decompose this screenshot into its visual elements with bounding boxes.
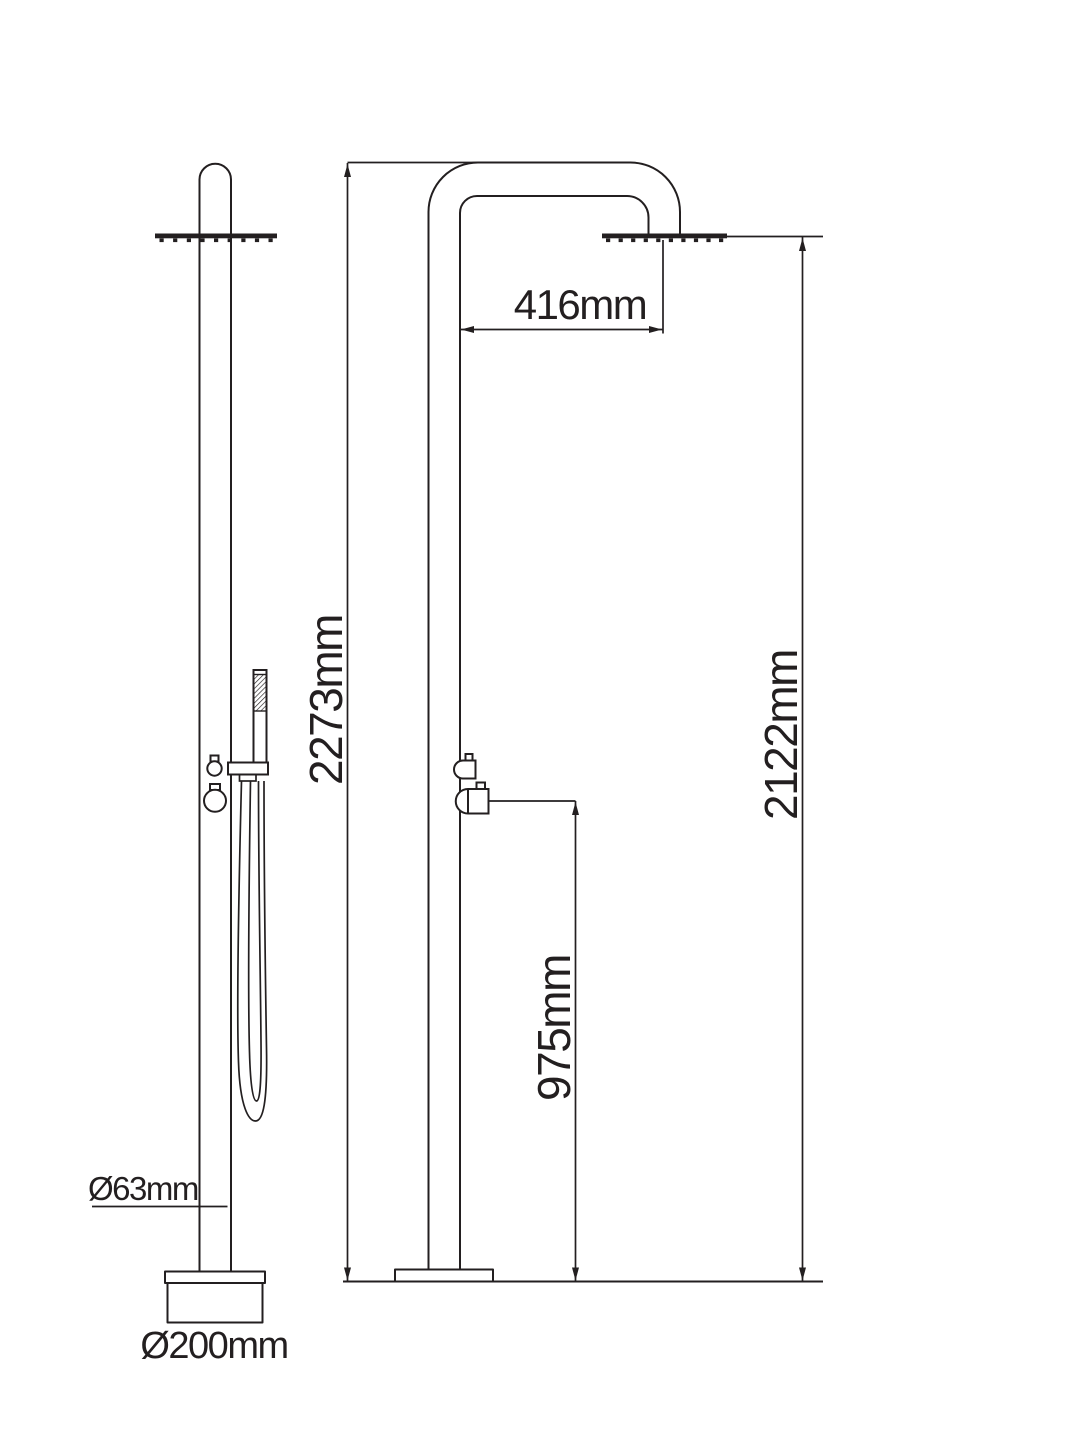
arrowhead-up <box>799 238 806 251</box>
dimension-base-diameter: Ø200mm <box>140 1325 287 1367</box>
front-base-plate <box>395 1270 493 1282</box>
side-column-outline <box>200 164 232 1272</box>
drawing-canvas: 2273mm 2122mm 975mm 416mm <box>0 0 1080 1439</box>
dimension-label-head-offset: 416mm <box>514 281 647 328</box>
front-showerhead-plate <box>602 234 727 239</box>
arrowhead-left <box>461 326 474 333</box>
shower-hose-outer <box>238 781 267 1121</box>
arrowhead-down <box>799 1268 806 1281</box>
dimension-label-head-height: 2122mm <box>755 650 807 820</box>
side-base-flange <box>165 1272 265 1284</box>
side-view <box>155 164 277 1323</box>
dimension-column-diameter: Ø63mm <box>88 1170 228 1207</box>
dimension-label-total-height: 2273mm <box>300 615 352 785</box>
dimension-head-offset: 416mm <box>460 240 663 334</box>
arrowhead-down <box>344 1268 351 1281</box>
hand-shower-holder <box>228 763 268 775</box>
arrowhead-up <box>572 802 579 815</box>
front-mixer-body <box>456 789 489 814</box>
diverter-knob <box>207 761 221 775</box>
arrowhead-down <box>572 1268 579 1281</box>
mixer-knob <box>204 790 226 812</box>
side-showerhead-plate <box>155 234 277 239</box>
hand-shower-spray-face <box>254 675 267 712</box>
front-showerhead-nozzles <box>606 239 723 243</box>
dimension-label-base-diameter: Ø200mm <box>140 1325 287 1367</box>
arrowhead-up <box>344 164 351 177</box>
dimension-head-height: 2122mm <box>727 237 823 1282</box>
dimension-total-height: 2273mm <box>300 163 480 1282</box>
side-base-body <box>168 1283 263 1323</box>
dimension-label-column-diameter: Ø63mm <box>88 1170 198 1207</box>
side-showerhead-nozzles <box>160 239 273 243</box>
dimension-mixer-height: 975mm <box>489 801 581 1281</box>
arrowhead-right <box>649 326 662 333</box>
front-column-inner <box>460 196 649 1270</box>
front-diverter-body <box>454 761 475 779</box>
shower-column-technical-drawing: 2273mm 2122mm 975mm 416mm <box>0 0 1080 1439</box>
dimension-label-mixer-height: 975mm <box>528 955 580 1101</box>
shower-hose-inner <box>249 781 261 1101</box>
